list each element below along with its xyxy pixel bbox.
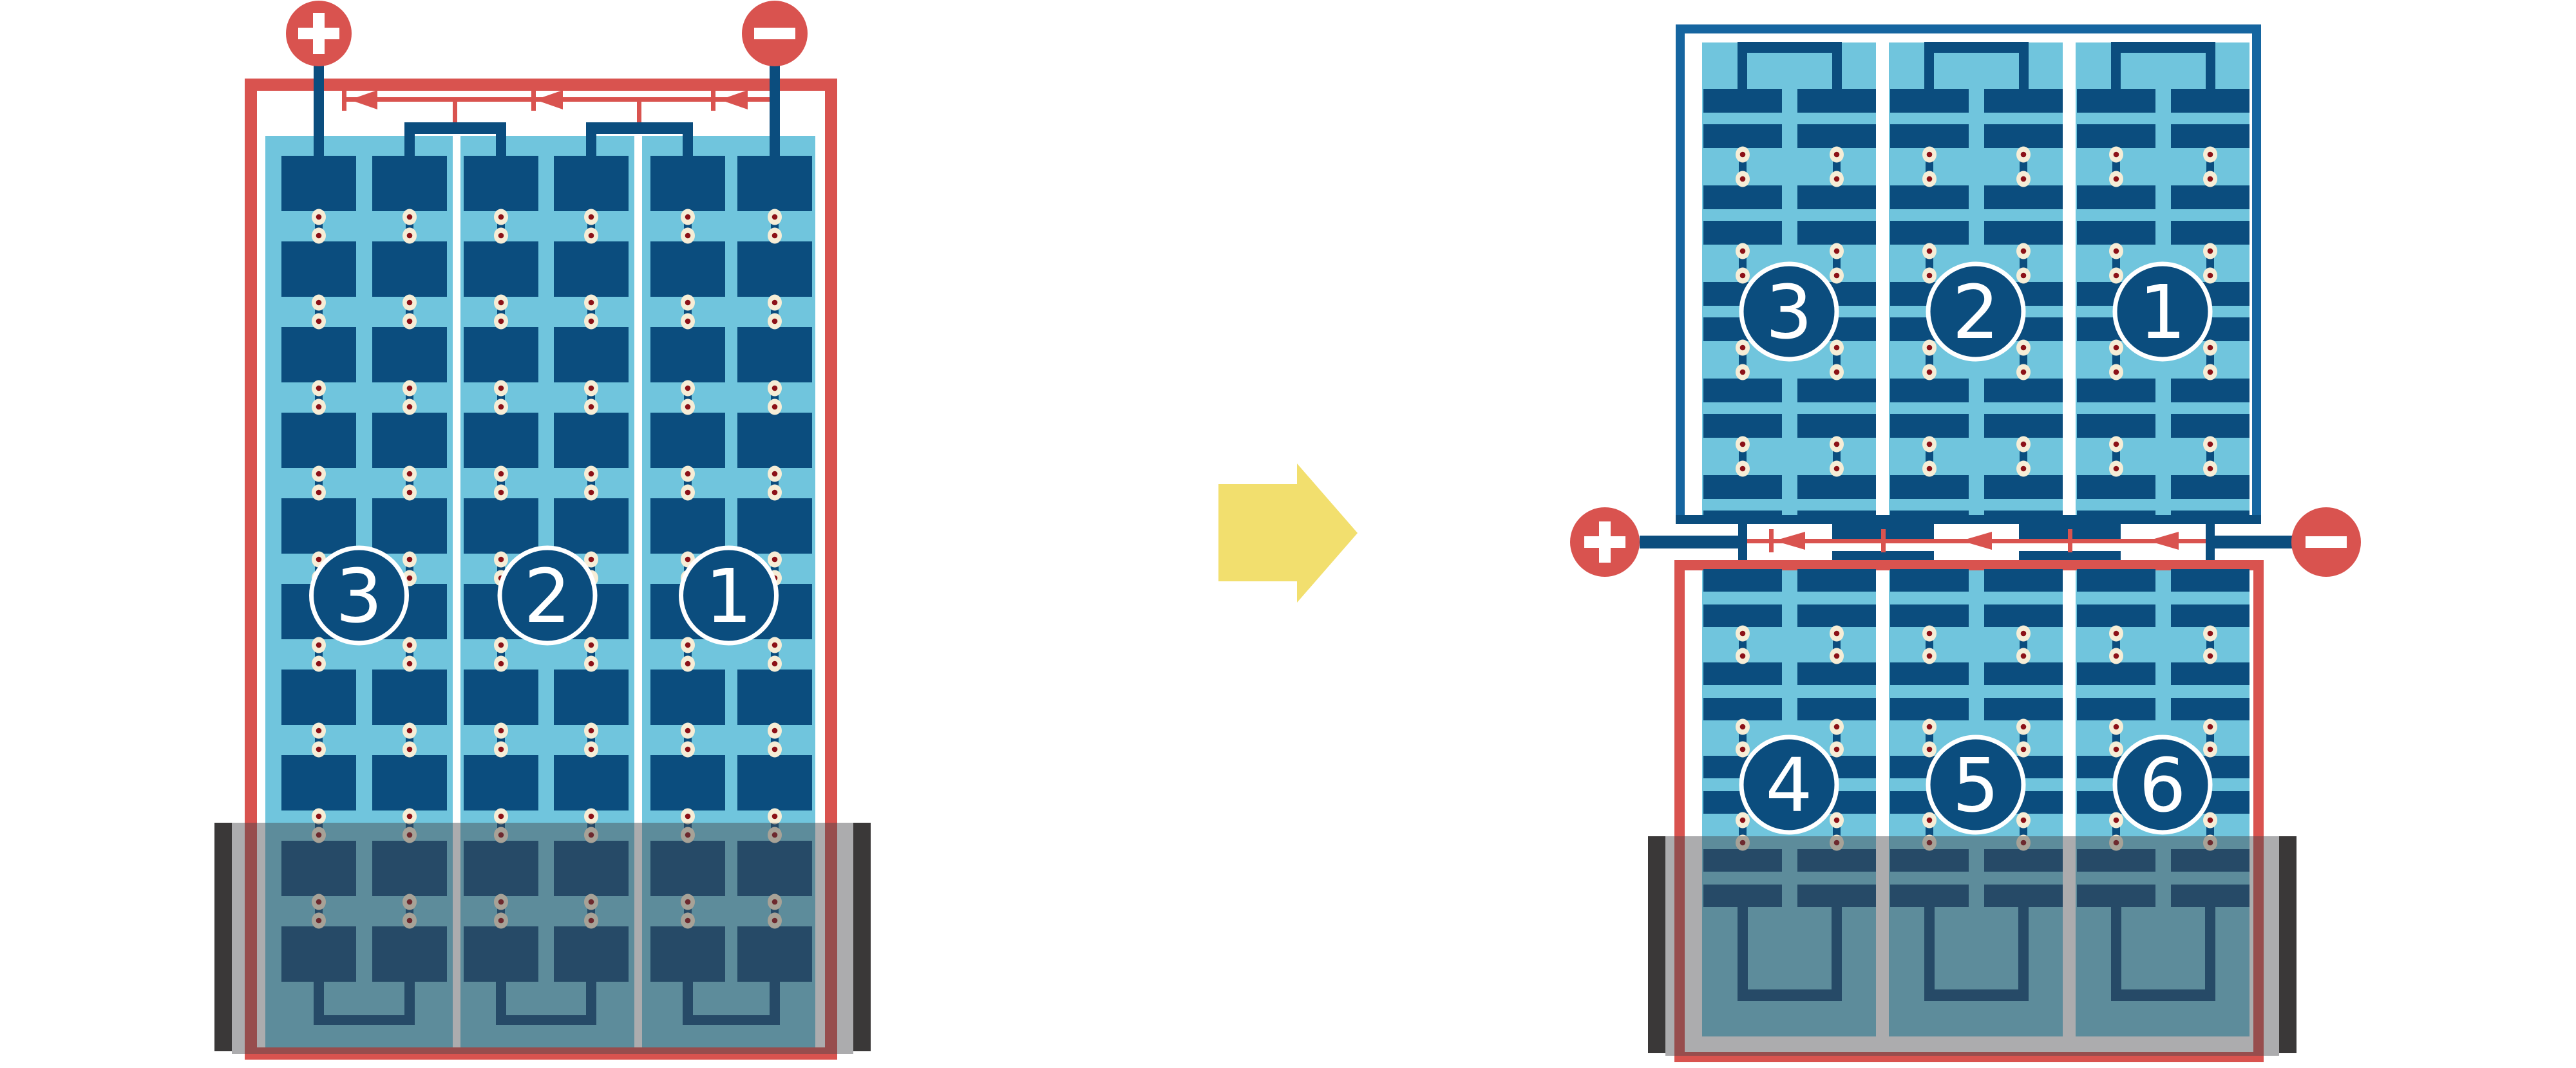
cell-plate — [1797, 379, 1876, 402]
plate-rivet-dot — [2203, 268, 2217, 284]
cell-plate — [464, 498, 538, 554]
plate-rivet-dot — [1922, 626, 1937, 642]
top-u-bridge — [1738, 42, 1842, 53]
plate-rivet-dot — [402, 314, 417, 330]
battery-stand-overlay — [1648, 836, 2297, 1056]
plate-rivet-dot — [2109, 461, 2123, 477]
cell-plate — [1703, 604, 1782, 627]
plate-rivet-dot — [312, 637, 326, 653]
plate-rivet-dot — [2016, 648, 2031, 664]
cell-plate — [464, 755, 538, 810]
plate-rivet-dot — [2016, 147, 2031, 163]
plate-rivet-dot — [402, 295, 417, 311]
plate-rivet-dot — [1922, 648, 1937, 664]
cell-plate — [372, 413, 447, 468]
plate-rivet-dot — [2016, 461, 2031, 477]
cell-plate — [281, 327, 356, 382]
current-tick — [1881, 529, 1886, 552]
plate-rivet-dot — [1736, 812, 1750, 829]
plate-rivet-dot — [312, 399, 326, 415]
plate-rivet-dot — [1922, 268, 1937, 284]
plate-rivet-dot — [402, 656, 417, 672]
junction-tab — [1738, 524, 1747, 561]
plate-rivet-dot — [2109, 340, 2123, 356]
plate-rivet-dot — [494, 228, 508, 244]
cell-plate — [1984, 662, 2063, 685]
plate-rivet-dot — [312, 314, 326, 330]
cell-plate — [2077, 569, 2155, 592]
cell-plate — [1890, 221, 1969, 245]
cell-plate — [1797, 604, 1876, 627]
cell-number-label: 2 — [524, 554, 571, 640]
cell-plate — [1703, 511, 1782, 515]
plate-rivet-dot — [2016, 268, 2031, 284]
plate-rivet-dot — [768, 380, 782, 397]
plate-rivet-dot — [1736, 268, 1750, 284]
top-box-border — [1676, 24, 2261, 33]
terminal-wire — [314, 63, 324, 169]
battery-stand-overlay — [214, 823, 871, 1054]
plate-rivet-dot — [1830, 147, 1844, 163]
plate-rivet-dot — [494, 637, 508, 653]
cell-plate — [372, 241, 447, 297]
plate-rivet-dot — [494, 742, 508, 758]
plate-rivet-dot — [2109, 719, 2123, 735]
plate-rivet-dot — [2109, 147, 2123, 163]
cell-plate — [2077, 475, 2155, 499]
plate-rivet-dot — [494, 314, 508, 330]
transform-arrow — [1218, 464, 1358, 603]
cell-plate — [737, 498, 812, 554]
plate-rivet-dot — [584, 399, 598, 415]
plate-rivet-dot — [1736, 147, 1750, 163]
plate-rivet-dot — [2203, 340, 2217, 356]
bridge-bar — [404, 122, 506, 134]
current-tick — [711, 89, 715, 111]
plate-rivet-dot — [1830, 340, 1844, 356]
plate-rivet-dot — [584, 209, 598, 225]
cell-plate — [1797, 221, 1876, 245]
cell-plate — [1703, 124, 1782, 148]
cell-number-label: 4 — [1765, 743, 1812, 829]
cell-plate — [650, 241, 725, 297]
junction-tab — [2206, 524, 2215, 561]
plate-rivet-dot — [2016, 340, 2031, 356]
plate-rivet-dot — [681, 723, 695, 739]
plus-terminal-icon — [1570, 507, 1640, 577]
cell-plate — [1890, 185, 1969, 209]
cell-plate — [650, 755, 725, 810]
plate-rivet-dot — [312, 380, 326, 397]
cell-plate — [737, 241, 812, 297]
plate-rivet-dot — [1922, 340, 1937, 356]
plate-rivet-dot — [1736, 719, 1750, 735]
cell-plate — [737, 156, 812, 211]
plate-rivet-dot — [2109, 243, 2123, 259]
stand-end-bar — [853, 823, 871, 1051]
cell-plate — [1890, 662, 1969, 685]
plate-rivet-dot — [2109, 742, 2123, 758]
plate-rivet-dot — [2109, 436, 2123, 453]
cell-plate — [737, 413, 812, 468]
plate-rivet-dot — [2109, 812, 2123, 829]
minus-terminal-icon — [742, 1, 808, 66]
plate-rivet-dot — [2109, 626, 2123, 642]
current-tick — [342, 89, 346, 111]
plate-rivet-dot — [2203, 243, 2217, 259]
cell-plate — [1984, 414, 2063, 438]
cell-plate — [1984, 379, 2063, 402]
plate-rivet-dot — [1830, 648, 1844, 664]
plate-rivet-dot — [1922, 171, 1937, 187]
bridge-stub — [453, 100, 457, 124]
plate-rivet-dot — [768, 314, 782, 330]
plate-rivet-dot — [1922, 436, 1937, 453]
cell-plate — [464, 413, 538, 468]
plate-rivet-dot — [584, 656, 598, 672]
plate-rivet-dot — [768, 809, 782, 825]
plate-rivet-dot — [768, 723, 782, 739]
cell-plate — [1890, 379, 1969, 402]
cell-plate — [650, 413, 725, 468]
cell-plate — [1890, 511, 1969, 515]
cell-plate — [2077, 662, 2155, 685]
cell-plate — [372, 670, 447, 725]
cell-plate — [1890, 569, 1969, 592]
plate-rivet-dot — [1736, 436, 1750, 453]
cell-plate — [2171, 124, 2249, 148]
diagram-canvas: 321321456 — [0, 0, 2576, 1068]
cell-number-badge: 5 — [1928, 737, 2023, 832]
cell-number-badge: 1 — [2115, 264, 2210, 359]
cell-plate — [2171, 604, 2249, 627]
plate-rivet-dot — [1922, 243, 1937, 259]
minus-terminal-icon — [2291, 507, 2361, 577]
plate-rivet-dot — [312, 809, 326, 825]
plate-rivet-dot — [768, 209, 782, 225]
current-arrowhead-icon — [1961, 532, 1992, 550]
cell-plate — [1703, 379, 1782, 402]
cell-number-badge: 1 — [681, 548, 777, 643]
plate-rivet-dot — [312, 485, 326, 501]
stand-shade — [232, 823, 853, 1054]
plate-rivet-dot — [681, 742, 695, 758]
cell-plate — [2171, 698, 2249, 720]
plate-rivet-dot — [402, 809, 417, 825]
current-tick — [1769, 529, 1774, 552]
cell-plate — [1797, 698, 1876, 720]
cell-plate — [1984, 604, 2063, 627]
cell-plate — [1797, 662, 1876, 685]
cell-plate — [464, 156, 538, 211]
cell-plate — [2171, 89, 2249, 113]
plate-rivet-dot — [402, 723, 417, 739]
terminal-wire — [2215, 536, 2292, 548]
plate-rivet-dot — [768, 656, 782, 672]
current-arrowhead-icon — [350, 90, 377, 109]
cell-plate — [554, 498, 629, 554]
cell-plate — [1984, 569, 2063, 592]
cell-plate — [281, 413, 356, 468]
cell-plate — [2171, 475, 2249, 499]
cell-plate — [2171, 414, 2249, 438]
cell-plate — [2077, 89, 2155, 113]
plate-rivet-dot — [402, 228, 417, 244]
cell-plate — [2077, 221, 2155, 245]
plate-rivet-dot — [768, 552, 782, 568]
cell-plate — [554, 670, 629, 725]
cell-plate — [737, 670, 812, 725]
cell-plate — [1797, 89, 1876, 113]
plate-rivet-dot — [1830, 719, 1844, 735]
terminal-wire — [1640, 536, 1738, 548]
plate-rivet-dot — [312, 742, 326, 758]
battery-rearrangement-figure: 321321456 — [0, 0, 2576, 1068]
plate-rivet-dot — [312, 228, 326, 244]
plate-rivet-dot — [1922, 742, 1937, 758]
cell-number-badge: 3 — [312, 548, 407, 643]
plate-rivet-dot — [1830, 461, 1844, 477]
cell-plate — [2077, 414, 2155, 438]
plus-terminal-icon — [286, 1, 352, 66]
plate-rivet-dot — [768, 485, 782, 501]
plate-rivet-dot — [2016, 812, 2031, 829]
plate-rivet-dot — [2016, 719, 2031, 735]
plate-rivet-dot — [402, 399, 417, 415]
cell-number-badge: 4 — [1741, 737, 1837, 832]
cell-plate — [1890, 698, 1969, 720]
plate-rivet-dot — [584, 637, 598, 653]
cell-number-label: 5 — [1952, 743, 1999, 829]
plate-rivet-dot — [584, 228, 598, 244]
stand-end-bar — [1648, 836, 1665, 1053]
plate-rivet-dot — [681, 637, 695, 653]
plate-rivet-dot — [768, 295, 782, 311]
cell-plate — [1984, 89, 2063, 113]
plate-rivet-dot — [768, 466, 782, 482]
cell-plate — [2171, 511, 2249, 515]
plate-rivet-dot — [584, 742, 598, 758]
plate-rivet-dot — [681, 399, 695, 415]
cell-plate — [1984, 511, 2063, 515]
plate-rivet-dot — [2203, 742, 2217, 758]
plate-rivet-dot — [1736, 626, 1750, 642]
plate-rivet-dot — [2016, 742, 2031, 758]
plate-rivet-dot — [402, 637, 417, 653]
plate-rivet-dot — [312, 656, 326, 672]
cell-plate — [554, 156, 629, 211]
plate-rivet-dot — [2016, 436, 2031, 453]
cell-plate — [1703, 414, 1782, 438]
cell-plate — [1890, 89, 1969, 113]
plate-rivet-dot — [2016, 626, 2031, 642]
cell-plate — [1984, 124, 2063, 148]
plate-rivet-dot — [681, 466, 695, 482]
plate-rivet-dot — [2203, 364, 2217, 380]
plate-rivet-dot — [1830, 742, 1844, 758]
plate-rivet-dot — [681, 228, 695, 244]
cell-plate — [2171, 662, 2249, 685]
plate-rivet-dot — [2016, 171, 2031, 187]
battery-cell-column: 1 — [2076, 42, 2249, 515]
plate-rivet-dot — [2203, 436, 2217, 453]
plate-rivet-dot — [584, 723, 598, 739]
plate-rivet-dot — [402, 485, 417, 501]
cell-plate — [1797, 414, 1876, 438]
plate-rivet-dot — [1922, 147, 1937, 163]
cell-plate — [1890, 475, 1969, 499]
plate-rivet-dot — [768, 637, 782, 653]
current-arrowhead-icon — [1774, 532, 1805, 550]
cell-plate — [2171, 379, 2249, 402]
plate-rivet-dot — [1830, 268, 1844, 284]
cell-plate — [650, 498, 725, 554]
top-u-bridge — [1924, 42, 2029, 53]
bridge-stub — [637, 100, 641, 124]
cell-plate — [2077, 124, 2155, 148]
cell-plate — [737, 327, 812, 382]
plate-rivet-dot — [584, 380, 598, 397]
junction-bridge — [1832, 551, 1934, 561]
cell-plate — [1703, 475, 1782, 499]
cell-plate — [1703, 221, 1782, 245]
cell-plate — [281, 156, 356, 211]
cell-plate — [554, 755, 629, 810]
plate-rivet-dot — [768, 228, 782, 244]
cell-plate — [1703, 569, 1782, 592]
plate-rivet-dot — [1922, 719, 1937, 735]
cell-plate — [464, 670, 538, 725]
cell-plate — [554, 327, 629, 382]
cell-plate — [372, 755, 447, 810]
plate-rivet-dot — [681, 485, 695, 501]
cell-plate — [2077, 379, 2155, 402]
plate-rivet-dot — [2203, 461, 2217, 477]
top-battery-box: 321 — [1676, 24, 2261, 524]
cell-plate — [1703, 698, 1782, 720]
plate-rivet-dot — [1736, 742, 1750, 758]
series-junction — [1640, 524, 2292, 561]
plate-rivet-dot — [494, 466, 508, 482]
plate-rivet-dot — [1736, 648, 1750, 664]
current-arrowhead-icon — [535, 90, 563, 109]
plate-rivet-dot — [584, 485, 598, 501]
plate-rivet-dot — [584, 809, 598, 825]
current-arrowhead-icon — [2148, 532, 2179, 550]
cell-plate — [2077, 511, 2155, 515]
cell-plate — [1890, 414, 1969, 438]
cell-plate — [737, 755, 812, 810]
current-tick — [2068, 529, 2072, 552]
cell-plate — [2171, 221, 2249, 245]
plate-rivet-dot — [312, 295, 326, 311]
plate-rivet-dot — [2203, 147, 2217, 163]
plate-rivet-dot — [768, 742, 782, 758]
cell-plate — [281, 498, 356, 554]
plate-rivet-dot — [494, 809, 508, 825]
cell-plate — [554, 241, 629, 297]
cell-plate — [1703, 89, 1782, 113]
plate-rivet-dot — [2016, 364, 2031, 380]
cell-plate — [2077, 698, 2155, 720]
cell-plate — [1797, 475, 1876, 499]
top-box-bottom-collector — [1676, 515, 2261, 524]
cell-plate — [464, 241, 538, 297]
plate-rivet-dot — [2109, 364, 2123, 380]
plate-rivet-dot — [402, 742, 417, 758]
current-direction-line — [1747, 529, 2206, 552]
top-u-bridge — [2111, 42, 2215, 53]
cell-plate — [2171, 569, 2249, 592]
plate-rivet-dot — [494, 380, 508, 397]
cell-plate — [281, 755, 356, 810]
cell-plate — [1890, 604, 1969, 627]
plate-rivet-dot — [2203, 626, 2217, 642]
plate-rivet-dot — [584, 295, 598, 311]
plate-rivet-dot — [681, 314, 695, 330]
junction-bridge — [2019, 551, 2121, 561]
plate-rivet-dot — [1830, 171, 1844, 187]
cell-number-badge: 2 — [500, 548, 595, 643]
plate-rivet-dot — [2203, 812, 2217, 829]
plate-rivet-dot — [681, 656, 695, 672]
plate-rivet-dot — [1736, 340, 1750, 356]
cell-plate — [281, 670, 356, 725]
cell-plate — [1797, 185, 1876, 209]
plate-rivet-dot — [2203, 171, 2217, 187]
cell-plate — [554, 413, 629, 468]
plate-rivet-dot — [494, 485, 508, 501]
cell-number-badge: 2 — [1928, 264, 2023, 359]
plate-rivet-dot — [494, 656, 508, 672]
cell-plate — [1984, 221, 2063, 245]
cell-plate — [372, 327, 447, 382]
cell-number-label: 3 — [336, 554, 383, 640]
plate-rivet-dot — [2203, 719, 2217, 735]
cell-plate — [1984, 475, 2063, 499]
cell-number-label: 1 — [705, 554, 752, 640]
battery-cell-column: 2 — [1889, 42, 2063, 515]
bottom-box-border — [1674, 560, 2264, 570]
right-arrow-icon — [1218, 464, 1358, 603]
cell-number-label: 1 — [2139, 270, 2186, 356]
cell-number-label: 2 — [1952, 270, 1999, 356]
plate-rivet-dot — [494, 209, 508, 225]
cell-number-label: 3 — [1765, 270, 1812, 356]
current-tick — [531, 89, 536, 111]
cell-plate — [2171, 185, 2249, 209]
plate-rivet-dot — [681, 209, 695, 225]
plate-rivet-dot — [681, 295, 695, 311]
plate-rivet-dot — [1830, 812, 1844, 829]
stand-end-bar — [214, 823, 232, 1051]
plate-rivet-dot — [402, 380, 417, 397]
cell-number-label: 6 — [2139, 743, 2186, 829]
cell-plate — [1797, 569, 1876, 592]
plate-rivet-dot — [1922, 364, 1937, 380]
plate-rivet-dot — [681, 380, 695, 397]
top-box-border — [1676, 24, 1685, 524]
cell-plate — [650, 327, 725, 382]
cell-plate — [1797, 511, 1876, 515]
plate-rivet-dot — [768, 399, 782, 415]
plate-rivet-dot — [2109, 648, 2123, 664]
cell-plate — [1890, 124, 1969, 148]
cell-plate — [1984, 185, 2063, 209]
cell-plate — [372, 156, 447, 211]
plate-rivet-dot — [2109, 268, 2123, 284]
stand-end-bar — [2279, 836, 2297, 1053]
